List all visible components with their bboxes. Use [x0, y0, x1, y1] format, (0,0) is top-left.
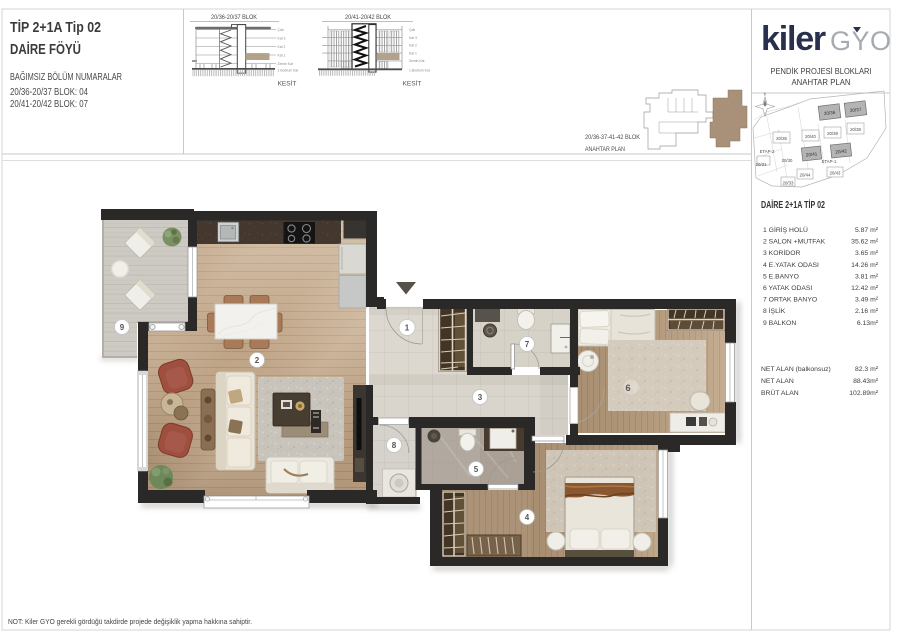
svg-text:Kat 3: Kat 3 [278, 36, 286, 40]
svg-text:2.16 m²: 2.16 m² [855, 308, 879, 315]
svg-text:5 E.BANYO: 5 E.BANYO [763, 273, 799, 280]
svg-text:20/40: 20/40 [805, 134, 816, 139]
svg-text:7: 7 [525, 340, 530, 349]
svg-text:1 GİRİŞ HOLÜ: 1 GİRİŞ HOLÜ [763, 225, 808, 234]
svg-text:4 E.YATAK ODASI: 4 E.YATAK ODASI [763, 262, 819, 269]
svg-text:KESİT: KESİT [278, 79, 297, 88]
svg-text:20/31: 20/31 [756, 162, 767, 167]
svg-text:7 ORTAK BANYO: 7 ORTAK BANYO [763, 297, 817, 304]
svg-text:DAİRE FÖYÜ: DAİRE FÖYÜ [10, 41, 81, 58]
svg-text:ETAP-1: ETAP-1 [822, 159, 837, 164]
svg-text:TİP 2+1A Tip 02: TİP 2+1A Tip 02 [10, 19, 101, 36]
svg-text:Çatı: Çatı [409, 28, 415, 32]
svg-text:3.65 m²: 3.65 m² [855, 250, 879, 257]
svg-text:4: 4 [525, 513, 530, 522]
svg-text:Zemin Kat: Zemin Kat [278, 62, 294, 66]
svg-text:20/41-20/42 BLOK: 20/41-20/42 BLOK [345, 14, 391, 21]
svg-text:20/41-20/42 BLOK: 07: 20/41-20/42 BLOK: 07 [10, 99, 88, 110]
svg-text:3: 3 [478, 393, 483, 402]
svg-text:BAĞIMSIZ BÖLÜM NUMARALAR: BAĞIMSIZ BÖLÜM NUMARALAR [10, 70, 122, 83]
svg-text:20/36-20/37 BLOK: 20/36-20/37 BLOK [211, 14, 257, 21]
svg-text:NOT: Kiler GYO gerekli gördüğü: NOT: Kiler GYO gerekli gördüğü takdirde … [8, 617, 252, 626]
svg-text:20/43: 20/43 [830, 171, 841, 176]
svg-text:6: 6 [625, 383, 630, 394]
svg-text:5: 5 [474, 465, 479, 474]
svg-text:ANAHTAR PLAN: ANAHTAR PLAN [585, 146, 625, 153]
svg-text:ANAHTAR PLAN: ANAHTAR PLAN [792, 78, 851, 87]
svg-text:82.3 m²: 82.3 m² [855, 366, 879, 373]
svg-text:102.89m²: 102.89m² [849, 390, 878, 397]
svg-text:ETAP-2: ETAP-2 [760, 149, 775, 154]
svg-text:Kat 2: Kat 2 [409, 44, 417, 48]
svg-text:20/39: 20/39 [827, 131, 838, 136]
svg-text:20/38: 20/38 [850, 127, 861, 132]
svg-text:20/33: 20/33 [783, 181, 794, 186]
svg-text:BRÜT ALAN: BRÜT ALAN [761, 389, 799, 397]
svg-text:88.43m²: 88.43m² [853, 378, 879, 385]
svg-text:NET ALAN (balkonsuz): NET ALAN (balkonsuz) [761, 366, 831, 373]
svg-text:Kat 1: Kat 1 [409, 51, 417, 55]
svg-text:5.87 m²: 5.87 m² [855, 227, 879, 234]
svg-text:PENDİK PROJESİ BLOKLARI: PENDİK PROJESİ BLOKLARI [771, 67, 872, 76]
svg-text:Kat 1: Kat 1 [278, 53, 286, 57]
svg-text:2 SALON +MUTFAK: 2 SALON +MUTFAK [763, 239, 826, 246]
svg-text:3 KORİDOR: 3 KORİDOR [763, 248, 800, 257]
svg-text:kiler: kiler [761, 20, 826, 58]
svg-text:20/36-20/37 BLOK: 04: 20/36-20/37 BLOK: 04 [10, 87, 88, 98]
svg-text:Zemin Kat: Zemin Kat [409, 59, 425, 63]
svg-text:20/35: 20/35 [776, 136, 787, 141]
svg-text:9: 9 [120, 323, 125, 332]
svg-text:8 İŞLİK: 8 İŞLİK [763, 306, 786, 315]
svg-text:1.Bodrum Kat: 1.Bodrum Kat [409, 69, 430, 73]
svg-text:2: 2 [255, 356, 260, 365]
svg-text:20/36-37-41-42 BLOK: 20/36-37-41-42 BLOK [585, 134, 641, 141]
svg-text:20/30: 20/30 [782, 158, 793, 163]
svg-text:Kat 3: Kat 3 [409, 36, 417, 40]
svg-text:3.49 m²: 3.49 m² [855, 297, 879, 304]
svg-text:NET ALAN: NET ALAN [761, 378, 794, 385]
svg-text:6.13m²: 6.13m² [857, 320, 879, 327]
svg-text:9 BALKON: 9 BALKON [763, 320, 796, 327]
svg-text:1: 1 [405, 324, 410, 333]
svg-text:8: 8 [392, 441, 397, 450]
svg-text:12.42 m²: 12.42 m² [851, 285, 879, 292]
svg-text:K: K [764, 92, 767, 97]
svg-text:3.81 m²: 3.81 m² [855, 273, 879, 280]
svg-text:6 YATAK ODASI: 6 YATAK ODASI [763, 285, 812, 292]
svg-text:DAİRE 2+1A TİP 02: DAİRE 2+1A TİP 02 [761, 198, 825, 211]
svg-text:KESİT: KESİT [403, 79, 422, 88]
svg-text:Çatı: Çatı [278, 28, 284, 32]
svg-text:35.62 m²: 35.62 m² [851, 239, 879, 246]
svg-text:Kat 2: Kat 2 [278, 45, 286, 49]
svg-text:1 Bodrum Kat: 1 Bodrum Kat [278, 69, 299, 73]
svg-text:20/44: 20/44 [800, 173, 811, 178]
svg-text:GYO: GYO [830, 26, 892, 56]
svg-text:14.26 m²: 14.26 m² [851, 262, 879, 269]
